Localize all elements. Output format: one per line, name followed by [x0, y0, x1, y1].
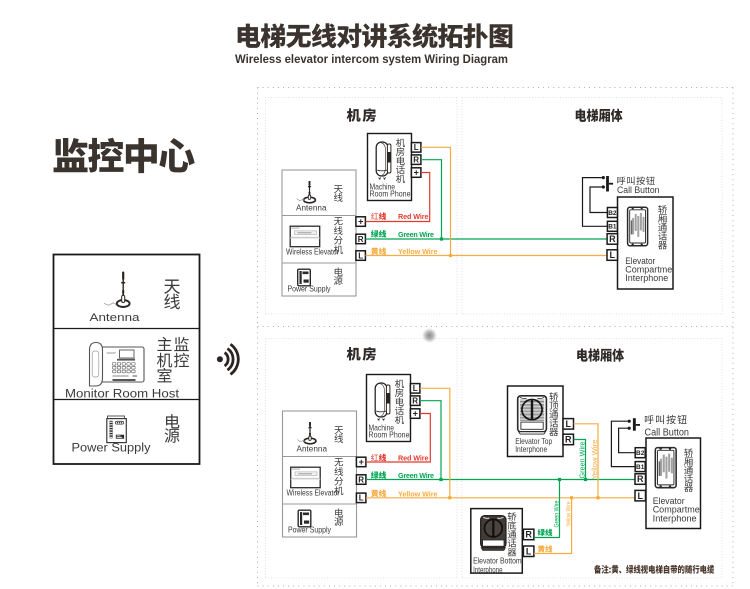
- svg-text:R: R: [565, 435, 572, 445]
- svg-text:+: +: [414, 168, 419, 178]
- svg-text:B2: B2: [608, 210, 617, 217]
- svg-text:Red Wire: Red Wire: [398, 212, 429, 221]
- svg-text:Interphone: Interphone: [515, 444, 547, 454]
- svg-text:L: L: [413, 384, 418, 393]
- svg-text:Yellow Wire: Yellow Wire: [566, 501, 573, 526]
- svg-text:L: L: [526, 546, 532, 556]
- svg-text:R: R: [413, 156, 419, 165]
- svg-text:Green Wire: Green Wire: [554, 500, 561, 527]
- svg-text:L: L: [358, 251, 363, 260]
- svg-text:R: R: [525, 530, 532, 540]
- svg-text:Wireless elevator intercom sys: Wireless elevator intercom system Wiring…: [235, 54, 508, 66]
- svg-text:Monitor Room Host: Monitor Room Host: [65, 389, 180, 401]
- svg-text:Power Supply: Power Supply: [72, 443, 151, 455]
- svg-text:Interphone: Interphone: [625, 273, 668, 283]
- svg-text:Yellow Wire: Yellow Wire: [590, 440, 599, 480]
- svg-text:+: +: [358, 217, 363, 227]
- svg-text:L: L: [359, 494, 364, 503]
- svg-text:Room Phone: Room Phone: [370, 190, 411, 199]
- svg-text:Room Phone: Room Phone: [369, 431, 410, 440]
- svg-text:Power Supply: Power Supply: [288, 285, 331, 294]
- svg-text:Call Button: Call Button: [645, 427, 690, 438]
- svg-text:R: R: [412, 397, 418, 406]
- svg-text:Yellow Wire: Yellow Wire: [398, 247, 438, 256]
- svg-text:R: R: [358, 235, 364, 244]
- svg-text:Power Supply: Power Supply: [288, 526, 331, 535]
- svg-text:Wireless Elevator: Wireless Elevator: [286, 248, 339, 257]
- svg-text:Green Wire: Green Wire: [577, 442, 586, 479]
- svg-text:L: L: [414, 143, 419, 152]
- svg-text:R: R: [358, 475, 364, 484]
- svg-text:Interphone: Interphone: [473, 564, 503, 574]
- svg-text:B1: B1: [608, 224, 617, 231]
- svg-text:Antenna: Antenna: [296, 204, 327, 213]
- svg-text:Antenna: Antenna: [297, 445, 328, 454]
- svg-text:B1: B1: [636, 464, 645, 471]
- svg-text:Wireless Elevator: Wireless Elevator: [287, 489, 340, 498]
- svg-text:+: +: [413, 409, 418, 419]
- svg-text:Red Wire: Red Wire: [398, 454, 429, 463]
- svg-text:Green Wire: Green Wire: [398, 230, 434, 239]
- svg-text:B2: B2: [636, 450, 645, 457]
- svg-text:R: R: [609, 234, 616, 244]
- svg-text:Antenna: Antenna: [90, 312, 141, 324]
- svg-text:L: L: [637, 491, 643, 501]
- svg-text:Interphone: Interphone: [653, 513, 697, 523]
- svg-text:L: L: [609, 250, 615, 260]
- svg-text:Yellow Wire: Yellow Wire: [398, 489, 438, 498]
- svg-text:Green Wire: Green Wire: [398, 471, 434, 480]
- svg-text:Call Button: Call Button: [617, 185, 660, 195]
- svg-text:R: R: [637, 474, 644, 484]
- svg-text:+: +: [359, 457, 364, 467]
- svg-text:L: L: [566, 419, 572, 429]
